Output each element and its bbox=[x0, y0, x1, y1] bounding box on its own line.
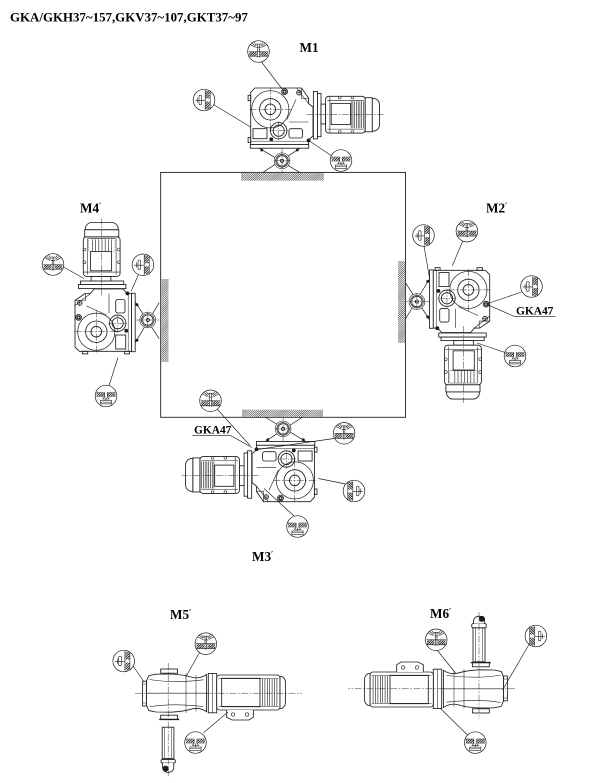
svg-text:M3′: M3′ bbox=[252, 549, 273, 564]
svg-text:M4′: M4′ bbox=[80, 201, 101, 216]
svg-text:GKA47: GKA47 bbox=[194, 425, 232, 437]
svg-text:M1: M1 bbox=[300, 40, 319, 55]
svg-text:M2′: M2′ bbox=[486, 201, 507, 216]
svg-text:M6′: M6′ bbox=[430, 606, 451, 621]
svg-text:GKA47: GKA47 bbox=[516, 305, 554, 317]
svg-text:GKA/GKH37~157,GKV37~107,GKT37~: GKA/GKH37~157,GKV37~107,GKT37~97 bbox=[10, 11, 248, 25]
svg-text:M5′: M5′ bbox=[170, 607, 191, 622]
